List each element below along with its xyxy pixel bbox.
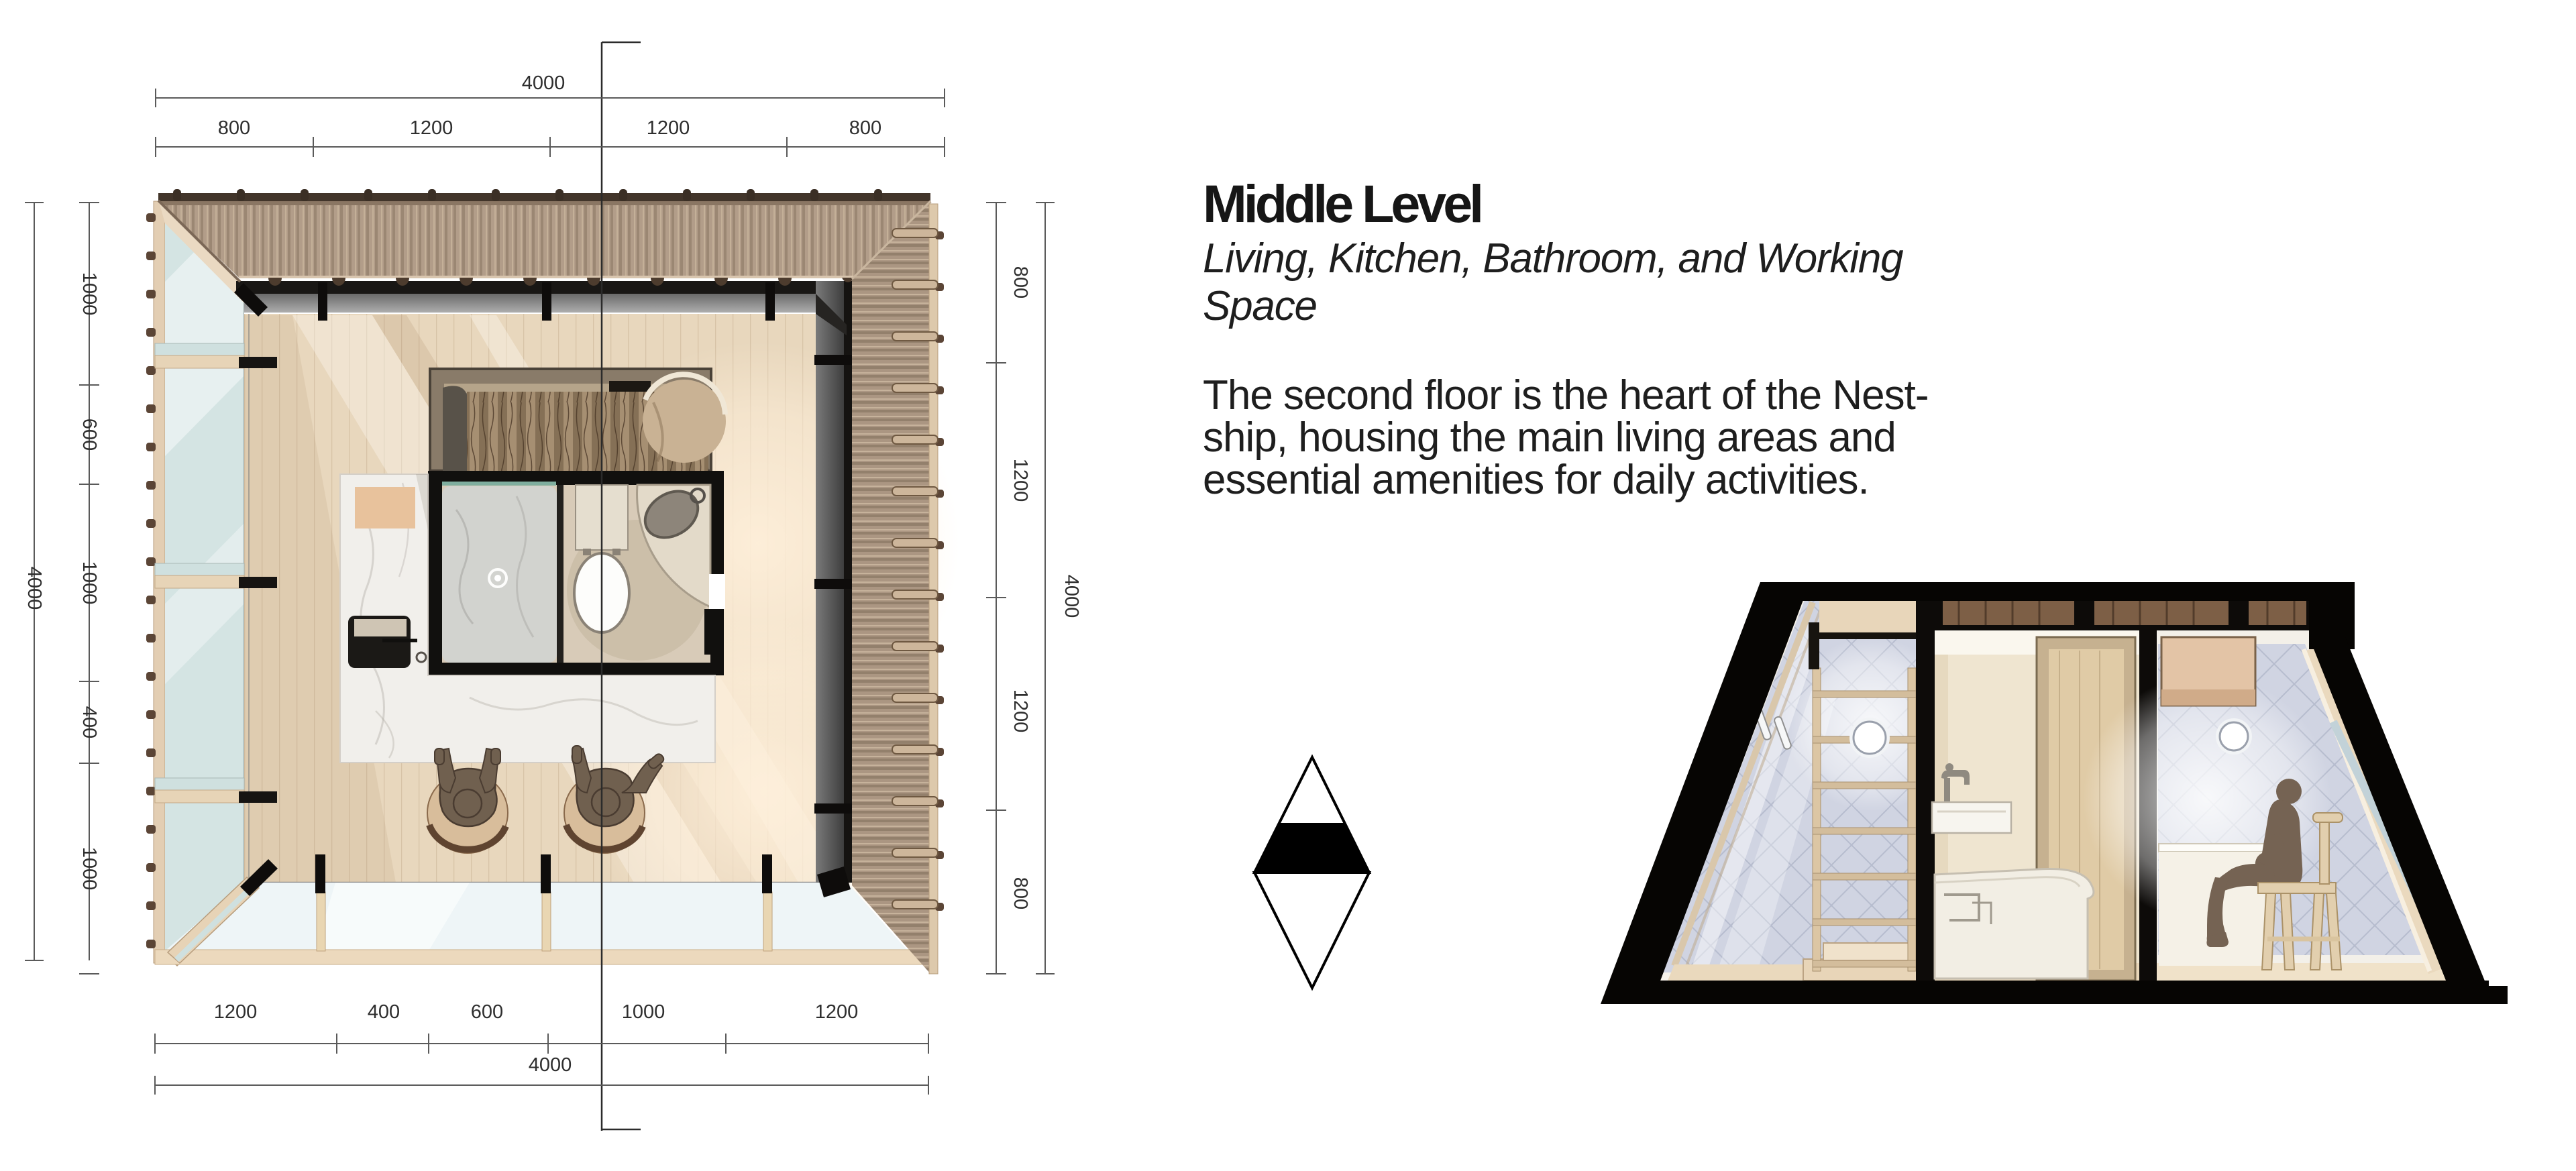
svg-text:1200: 1200 (1010, 459, 1031, 502)
svg-text:1000: 1000 (78, 847, 100, 891)
svg-text:600: 600 (78, 419, 100, 451)
svg-text:Living, Kitchen, Bathroom, and: Living, Kitchen, Bathroom, and Working (1203, 235, 1903, 282)
svg-text:1200: 1200 (815, 1001, 859, 1023)
svg-text:Space: Space (1203, 283, 1317, 329)
svg-text:1200: 1200 (214, 1001, 258, 1023)
svg-text:1000: 1000 (78, 272, 100, 316)
svg-text:Middle Level: Middle Level (1203, 174, 1481, 233)
svg-text:800: 800 (1010, 877, 1031, 909)
svg-text:ship, housing the main living: ship, housing the main living areas and (1203, 414, 1896, 461)
svg-text:1200: 1200 (647, 117, 690, 139)
svg-text:1200: 1200 (410, 117, 453, 139)
svg-text:800: 800 (218, 117, 250, 139)
svg-text:400: 400 (368, 1001, 400, 1023)
svg-text:400: 400 (78, 706, 100, 738)
svg-text:1200: 1200 (1010, 689, 1031, 733)
svg-text:essential amenities for daily: essential amenities for daily activities… (1203, 457, 1869, 503)
svg-text:4000: 4000 (522, 72, 566, 94)
svg-text:800: 800 (849, 117, 881, 139)
svg-text:1000: 1000 (78, 561, 100, 605)
svg-text:800: 800 (1010, 266, 1031, 298)
svg-text:4000: 4000 (1061, 575, 1082, 618)
svg-text:4000: 4000 (23, 567, 45, 610)
svg-text:4000: 4000 (529, 1054, 572, 1076)
svg-text:The second floor is the heart: The second floor is the heart of the Nes… (1203, 372, 1928, 419)
svg-text:1000: 1000 (622, 1001, 665, 1023)
svg-text:600: 600 (471, 1001, 503, 1023)
